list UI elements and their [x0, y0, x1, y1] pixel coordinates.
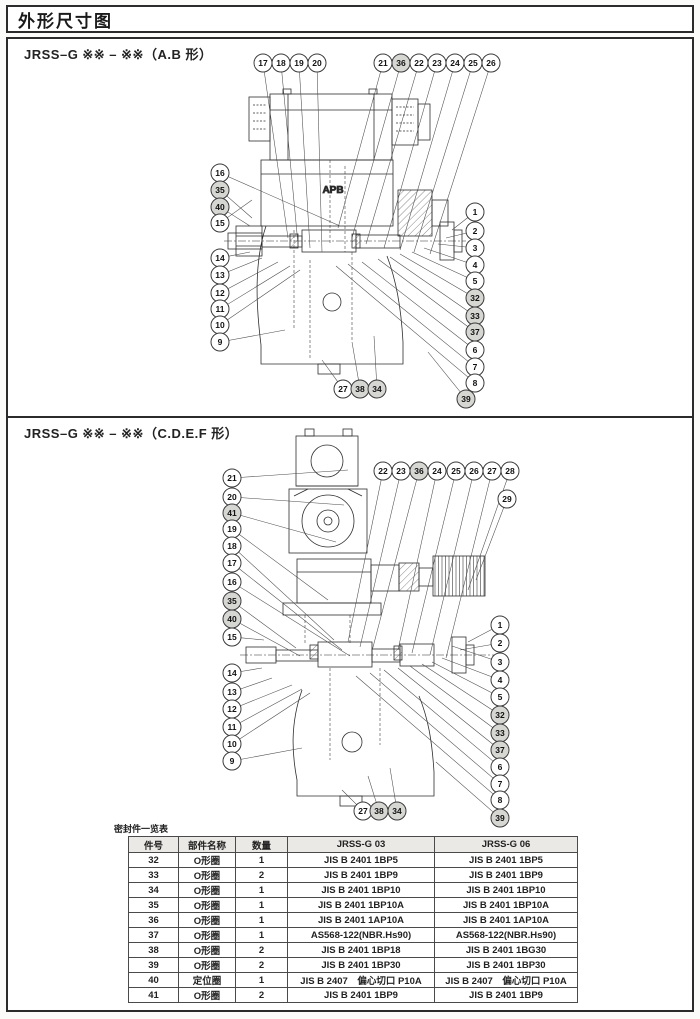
- callout-number: 12: [215, 288, 225, 298]
- table-cell: 1: [236, 883, 288, 898]
- leader-line-14: [241, 668, 262, 672]
- leader-line-5: [432, 662, 492, 693]
- table-row: 33O形圈2JIS B 2401 1BP9JIS B 2401 1BP9: [129, 868, 578, 883]
- callout-number: 14: [227, 668, 237, 678]
- table-row: 34O形圈1JIS B 2401 1BP10JIS B 2401 1BP10: [129, 883, 578, 898]
- callout-number: 9: [218, 337, 223, 347]
- table-cell: AS568-122(NBR.Hs90): [288, 928, 435, 943]
- table-cell: 39: [129, 958, 179, 973]
- table-row: 39O形圈2JIS B 2401 1BP30JIS B 2401 1BP30: [129, 958, 578, 973]
- callout-number: 11: [228, 722, 237, 732]
- leader-line-10: [227, 270, 300, 320]
- callout-number: 22: [378, 466, 388, 476]
- callout-number: 16: [215, 168, 225, 178]
- table-cell: JIS B 2401 1BP18: [288, 943, 435, 958]
- leader-line-2: [446, 233, 466, 238]
- table-cell: JIS B 2401 1BP10: [435, 883, 578, 898]
- leader-line-33: [390, 257, 468, 311]
- callout-number: 33: [495, 728, 505, 738]
- callout-number: 9: [230, 756, 235, 766]
- table-cell: JIS B 2401 1BP30: [288, 958, 435, 973]
- leader-line-27: [342, 790, 357, 805]
- table-cell: O形圈: [179, 958, 236, 973]
- leader-line-20: [317, 72, 322, 252]
- callout-number: 25: [468, 58, 478, 68]
- column-header: JRSS-G 06: [435, 837, 578, 853]
- table-cell: JIS B 2401 1BG30: [435, 943, 578, 958]
- callout-number: 27: [338, 384, 348, 394]
- table-cell: 38: [129, 943, 179, 958]
- seal-table-caption: 密封件一览表: [114, 822, 168, 835]
- column-header: 部件名称: [179, 837, 236, 853]
- leader-line-17: [239, 569, 342, 650]
- table-row: 32O形圈1JIS B 2401 1BP5JIS B 2401 1BP5: [129, 853, 578, 868]
- callout-number: 27: [358, 806, 368, 816]
- table-cell: JIS B 2401 1AP10A: [288, 913, 435, 928]
- table-row: 37O形圈1AS568-122(NBR.Hs90)AS568-122(NBR.H…: [129, 928, 578, 943]
- seal-table-body: 32O形圈1JIS B 2401 1BP5JIS B 2401 1BP533O形…: [129, 853, 578, 1003]
- callouts-ab: 1718192021362223242526163540151413121110…: [211, 54, 500, 408]
- callout-number: 8: [473, 378, 478, 388]
- callout-number: 34: [392, 806, 402, 816]
- callout-number: 1: [473, 207, 478, 217]
- table-cell: O形圈: [179, 928, 236, 943]
- callout-number: 36: [396, 58, 406, 68]
- table-cell: O形圈: [179, 868, 236, 883]
- leader-line-33: [410, 666, 493, 728]
- leader-line-20: [241, 498, 344, 505]
- leader-line-25: [414, 72, 470, 252]
- leader-line-5: [412, 252, 467, 277]
- table-cell: 32: [129, 853, 179, 868]
- callout-number: 12: [227, 704, 237, 714]
- table-header-row: 件号部件名称数量JRSS-G 03JRSS-G 06: [129, 837, 578, 853]
- leader-line-37: [378, 259, 468, 327]
- callout-number: 4: [473, 260, 478, 270]
- leader-line-7: [348, 264, 468, 361]
- column-header: 数量: [236, 837, 288, 853]
- callout-number: 40: [215, 202, 225, 212]
- callout-number: 18: [276, 58, 286, 68]
- leader-line-1: [468, 629, 492, 642]
- table-cell: 1: [236, 898, 288, 913]
- leader-line-27: [322, 360, 338, 382]
- table-cell: 1: [236, 973, 288, 988]
- table-cell: JIS B 2407 偏心切口 P10A: [288, 973, 435, 988]
- callout-number: 1: [498, 620, 503, 630]
- leader-line-38: [352, 342, 359, 380]
- callout-number: 20: [312, 58, 322, 68]
- callout-number: 39: [461, 394, 471, 404]
- table-cell: 1: [236, 928, 288, 943]
- callout-number: 24: [432, 466, 442, 476]
- callout-number: 8: [498, 795, 503, 805]
- table-cell: JIS B 2401 1BP10A: [288, 898, 435, 913]
- table-cell: O形圈: [179, 883, 236, 898]
- table-cell: JIS B 2401 1BP5: [288, 853, 435, 868]
- table-cell: 定位圈: [179, 973, 236, 988]
- table-cell: 36: [129, 913, 179, 928]
- table-cell: O形圈: [179, 898, 236, 913]
- table-cell: JIS B 2401 1BP9: [435, 988, 578, 1003]
- table-cell: 2: [236, 988, 288, 1003]
- table-cell: JIS B 2401 1BP30: [435, 958, 578, 973]
- leader-line-9: [229, 330, 285, 340]
- callout-number: 15: [215, 218, 225, 228]
- callout-number: 32: [470, 293, 480, 303]
- callout-number: 16: [227, 577, 237, 587]
- callout-number: 4: [498, 675, 503, 685]
- callout-number: 35: [227, 596, 237, 606]
- leader-line-4: [442, 658, 492, 677]
- leader-line-38: [368, 776, 376, 802]
- callout-number: 19: [294, 58, 304, 68]
- callout-number: 14: [215, 253, 225, 263]
- callout-number: 38: [374, 806, 384, 816]
- callout-number: 37: [495, 745, 505, 755]
- leader-line-16: [228, 177, 340, 226]
- leader-line-13: [241, 678, 273, 689]
- callout-number: 19: [227, 524, 237, 534]
- seal-table: 件号部件名称数量JRSS-G 03JRSS-G 06 32O形圈1JIS B 2…: [128, 836, 578, 1003]
- callouts-cdef: 2223362425262728292120411918171635401514…: [223, 462, 519, 827]
- callout-number: 32: [495, 710, 505, 720]
- callout-number: 3: [473, 243, 478, 253]
- leader-line-40: [228, 212, 250, 226]
- table-cell: 41: [129, 988, 179, 1003]
- leader-line-16: [240, 587, 350, 656]
- table-row: 36O形圈1JIS B 2401 1AP10AJIS B 2401 1AP10A: [129, 913, 578, 928]
- callout-number: 7: [498, 779, 503, 789]
- callout-number: 38: [355, 384, 365, 394]
- leader-line-41: [241, 515, 336, 542]
- callout-number: 26: [486, 58, 496, 68]
- callout-number: 25: [451, 466, 461, 476]
- leader-line-9: [241, 748, 302, 759]
- callout-number: 23: [396, 466, 406, 476]
- callout-number: 40: [227, 614, 237, 624]
- leader-line-34: [374, 336, 377, 380]
- callout-number: 36: [414, 466, 424, 476]
- table-cell: JIS B 2401 1BP5: [435, 853, 578, 868]
- table-cell: AS568-122(NBR.Hs90): [435, 928, 578, 943]
- callout-number: 6: [473, 345, 478, 355]
- leader-line-8: [336, 266, 468, 377]
- callout-number: 34: [372, 384, 382, 394]
- callout-number: 20: [227, 492, 237, 502]
- table-cell: JIS B 2401 1BP9: [288, 988, 435, 1003]
- callout-number: 6: [498, 762, 503, 772]
- leader-line-7: [370, 673, 493, 778]
- leader-line-12: [240, 685, 292, 706]
- callout-number: 21: [227, 473, 237, 483]
- table-cell: 2: [236, 868, 288, 883]
- table-cell: JIS B 2401 1AP10A: [435, 913, 578, 928]
- callout-number: 7: [473, 362, 478, 372]
- callout-number: 29: [502, 494, 512, 504]
- leader-line-39: [428, 352, 460, 392]
- table-cell: O形圈: [179, 988, 236, 1003]
- table-cell: O形圈: [179, 943, 236, 958]
- callout-number: 2: [498, 638, 503, 648]
- callout-number: 27: [487, 466, 497, 476]
- table-row: 38O形圈2JIS B 2401 1BP18JIS B 2401 1BG30: [129, 943, 578, 958]
- table-cell: 33: [129, 868, 179, 883]
- leader-line-40: [240, 623, 300, 656]
- table-cell: 1: [236, 853, 288, 868]
- leader-line-35: [227, 196, 252, 218]
- leader-line-10: [240, 693, 311, 739]
- callout-number: 33: [470, 311, 480, 321]
- drawing-label-apb: APB: [322, 185, 343, 196]
- column-header: 件号: [129, 837, 179, 853]
- callout-number: 11: [216, 304, 225, 314]
- leader-line-8: [356, 676, 493, 794]
- callout-number: 2: [473, 226, 478, 236]
- callout-number: 41: [227, 508, 237, 518]
- callout-number: 3: [498, 657, 503, 667]
- callout-number: 22: [414, 58, 424, 68]
- callout-number: 35: [215, 185, 225, 195]
- callout-number: 5: [498, 692, 503, 702]
- leader-line-22: [348, 480, 381, 642]
- table-cell: 1: [236, 913, 288, 928]
- callout-number: 10: [227, 739, 237, 749]
- leader-line-32: [422, 664, 493, 710]
- callout-number: 15: [227, 632, 237, 642]
- leader-line-35: [239, 606, 296, 648]
- table-cell: 35: [129, 898, 179, 913]
- callout-number: 13: [227, 687, 237, 697]
- callout-number: 17: [227, 558, 237, 568]
- table-cell: 2: [236, 943, 288, 958]
- callout-number: 18: [227, 541, 237, 551]
- leader-line-34: [390, 768, 396, 802]
- table-cell: O形圈: [179, 853, 236, 868]
- callout-number: 37: [470, 327, 480, 337]
- callout-number: 13: [215, 270, 225, 280]
- table-cell: 2: [236, 958, 288, 973]
- leader-line-15: [241, 638, 264, 640]
- table-row: 41O形圈2JIS B 2401 1BP9JIS B 2401 1BP9: [129, 988, 578, 1003]
- technical-drawing-ab: APB: [224, 89, 466, 374]
- callout-number: 10: [215, 320, 225, 330]
- table-row: 40定位圈1JIS B 2407 偏心切口 P10AJIS B 2407 偏心切…: [129, 973, 578, 988]
- callout-number: 5: [473, 276, 478, 286]
- column-header: JRSS-G 03: [288, 837, 435, 853]
- table-cell: 37: [129, 928, 179, 943]
- leader-line-14: [229, 252, 250, 256]
- callout-number: 24: [450, 58, 460, 68]
- callout-number: 17: [258, 58, 268, 68]
- leader-line-18: [239, 552, 334, 640]
- leader-line-2: [460, 645, 491, 650]
- leader-line-13: [228, 258, 262, 272]
- callout-number: 26: [469, 466, 479, 476]
- table-cell: O形圈: [179, 913, 236, 928]
- callout-number: 39: [495, 813, 505, 823]
- catalog-page: { "page_title": "外形尺寸图", "sections": [ {…: [0, 0, 700, 1019]
- table-cell: JIS B 2401 1BP9: [288, 868, 435, 883]
- callout-number: 28: [505, 466, 515, 476]
- callout-number: 23: [432, 58, 442, 68]
- leader-line-19: [239, 534, 328, 600]
- table-row: 35O形圈1JIS B 2401 1BP10AJIS B 2401 1BP10A: [129, 898, 578, 913]
- table-cell: 34: [129, 883, 179, 898]
- leader-line-12: [228, 262, 278, 289]
- callout-number: 21: [378, 58, 388, 68]
- table-cell: JIS B 2401 1BP10: [288, 883, 435, 898]
- table-cell: JIS B 2401 1BP9: [435, 868, 578, 883]
- table-cell: 40: [129, 973, 179, 988]
- table-cell: JIS B 2407 偏心切口 P10A: [435, 973, 578, 988]
- leader-line-18: [282, 72, 298, 244]
- table-cell: JIS B 2401 1BP10A: [435, 898, 578, 913]
- leader-line-11: [240, 689, 302, 723]
- leader-line-17: [264, 72, 288, 238]
